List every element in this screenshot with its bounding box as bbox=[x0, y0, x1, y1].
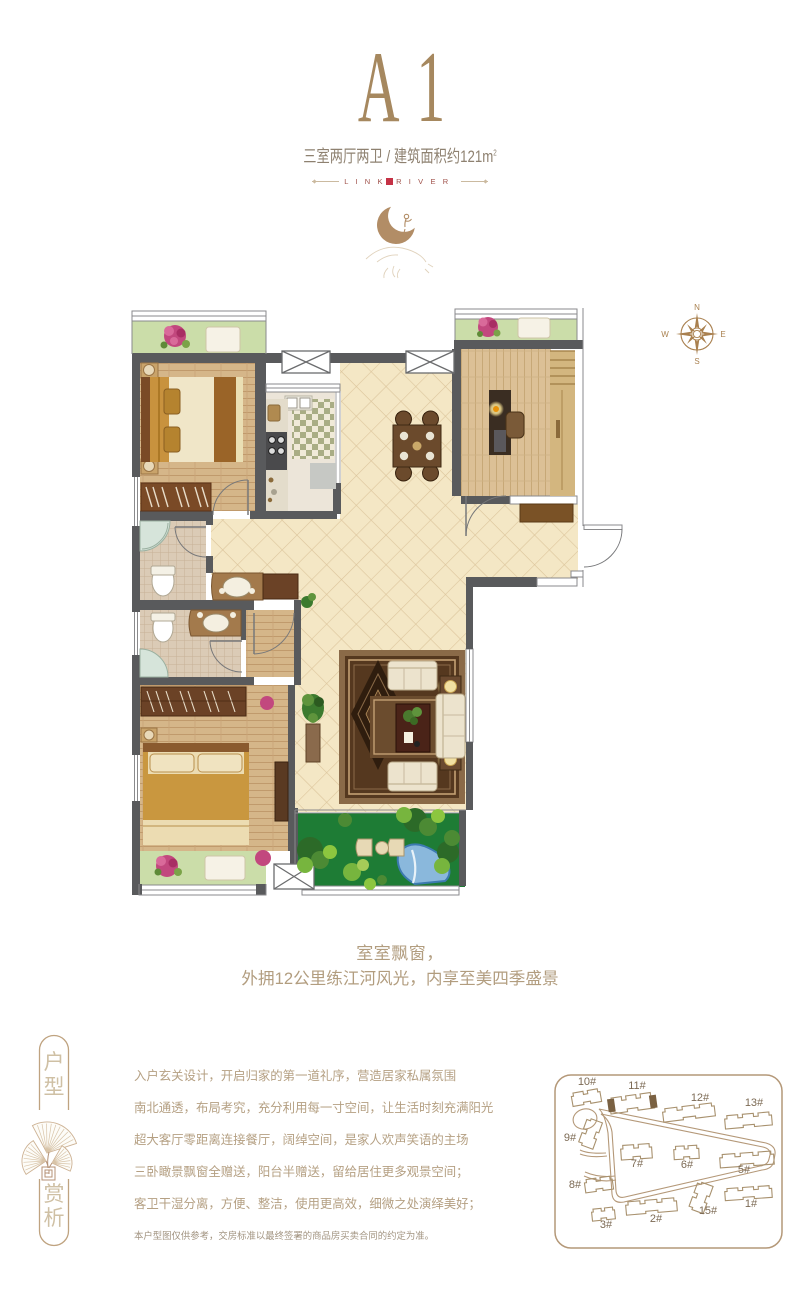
svg-text:N: N bbox=[694, 303, 700, 312]
svg-text:6#: 6# bbox=[681, 1159, 694, 1171]
svg-text:10#: 10# bbox=[578, 1076, 597, 1088]
svg-text:13#: 13# bbox=[745, 1097, 764, 1109]
svg-text:W: W bbox=[661, 330, 669, 339]
svg-text:15#: 15# bbox=[699, 1205, 718, 1217]
svg-text:2#: 2# bbox=[650, 1213, 663, 1225]
svg-text:9#: 9# bbox=[564, 1132, 577, 1144]
svg-text:5#: 5# bbox=[738, 1164, 751, 1176]
svg-text:3#: 3# bbox=[600, 1219, 613, 1231]
svg-text:1#: 1# bbox=[745, 1198, 758, 1210]
svg-text:S: S bbox=[694, 357, 699, 366]
svg-text:7#: 7# bbox=[631, 1158, 644, 1170]
svg-text:8#: 8# bbox=[569, 1179, 582, 1191]
svg-text:12#: 12# bbox=[691, 1092, 710, 1104]
svg-text:E: E bbox=[720, 330, 725, 339]
svg-text:户: 户 bbox=[44, 1051, 65, 1074]
svg-text:11#: 11# bbox=[628, 1080, 646, 1092]
svg-text:型: 型 bbox=[44, 1076, 65, 1099]
svg-text:赏: 赏 bbox=[44, 1183, 65, 1206]
svg-text:析: 析 bbox=[44, 1207, 65, 1230]
